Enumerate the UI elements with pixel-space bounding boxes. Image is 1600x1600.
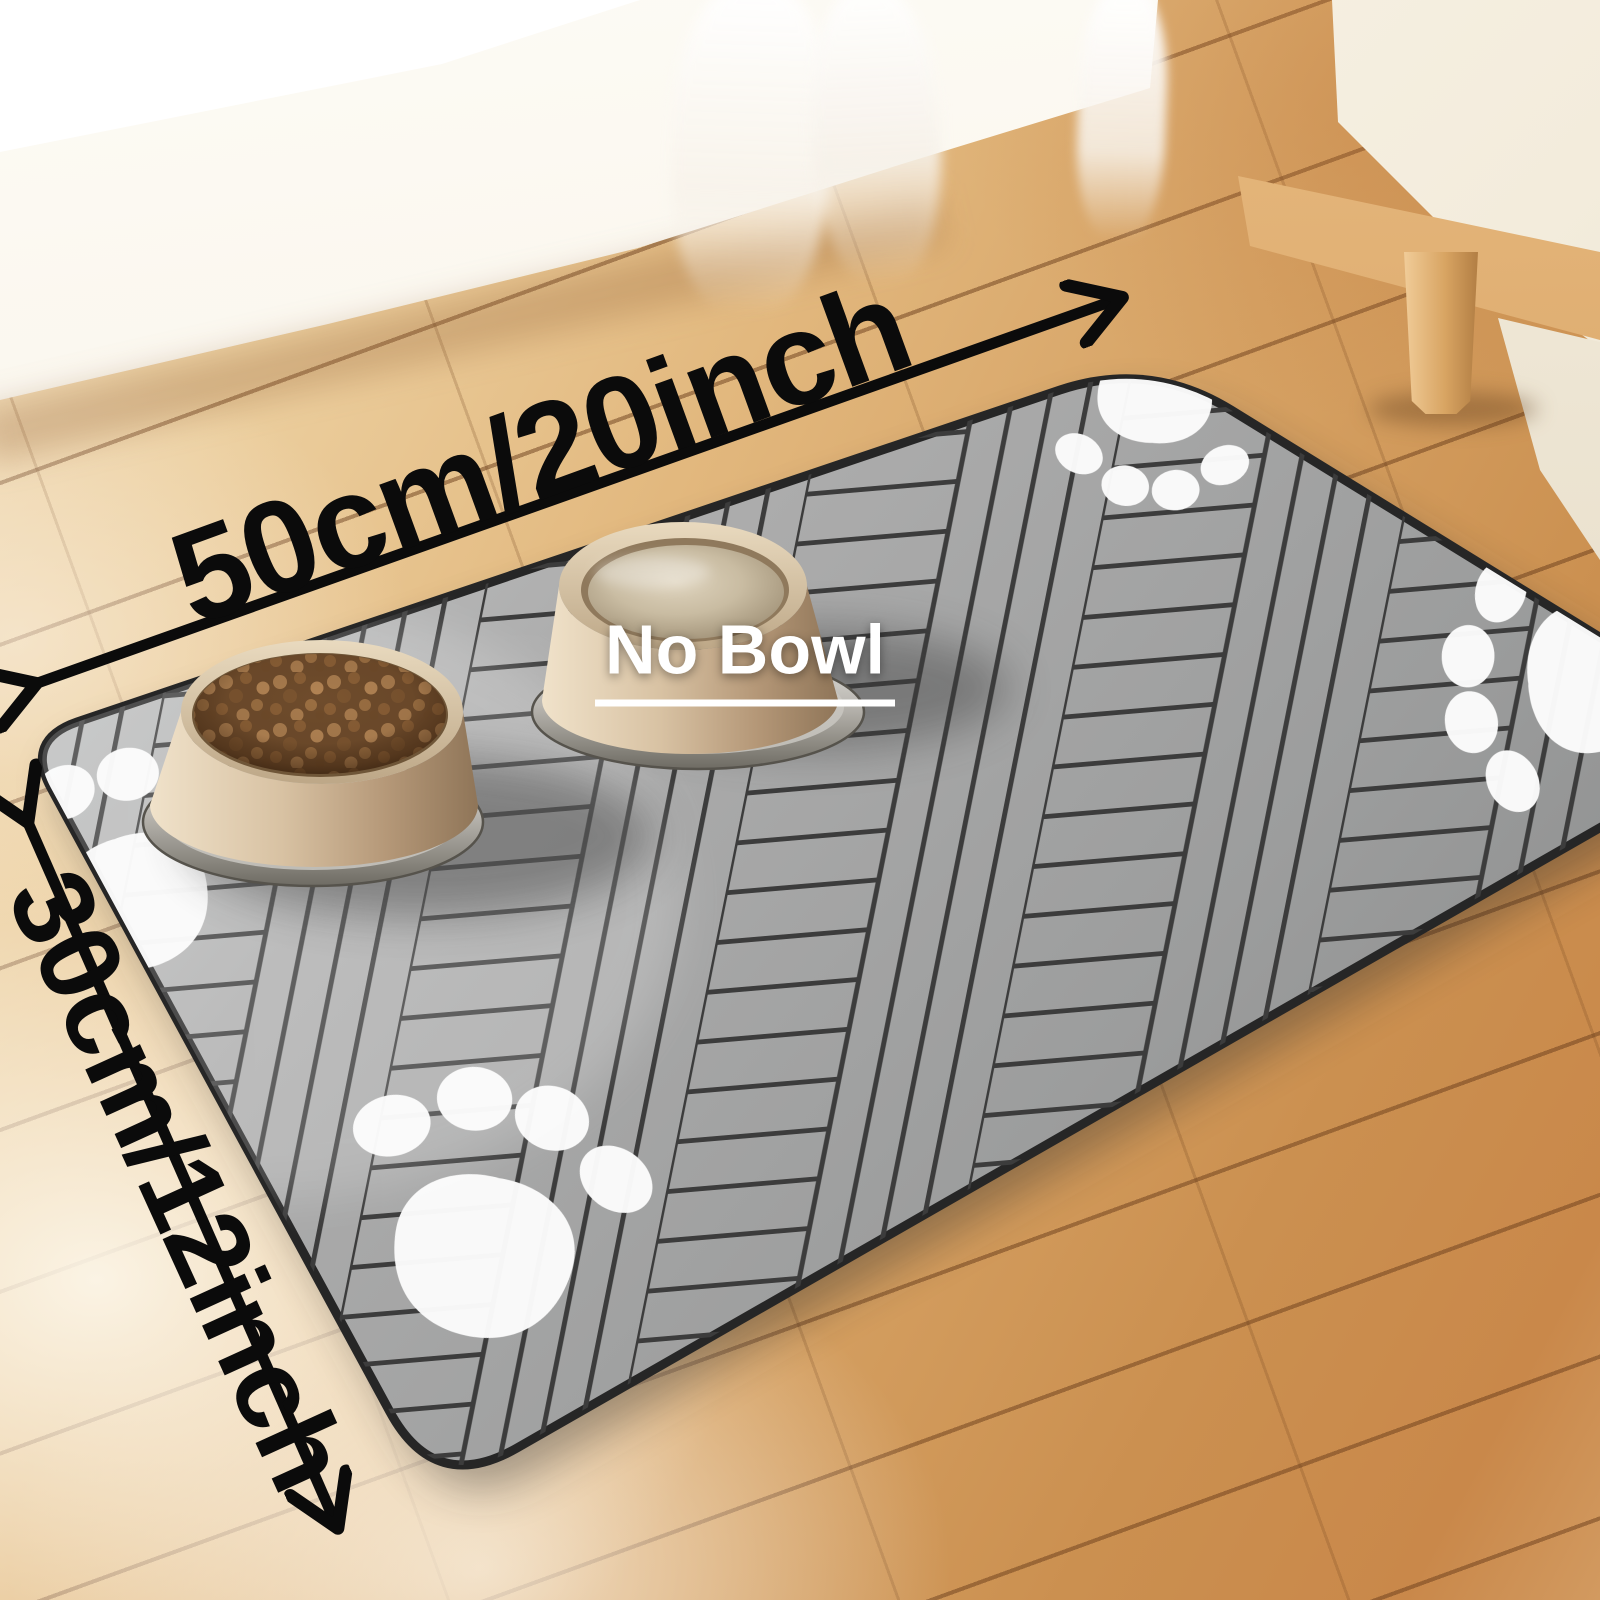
no-bowl-label: No Bowl bbox=[595, 610, 895, 707]
food-bowl bbox=[143, 640, 483, 886]
product-photo-scene: 50cm/20inch 30cm/12inch No Bowl bbox=[0, 0, 1600, 1600]
